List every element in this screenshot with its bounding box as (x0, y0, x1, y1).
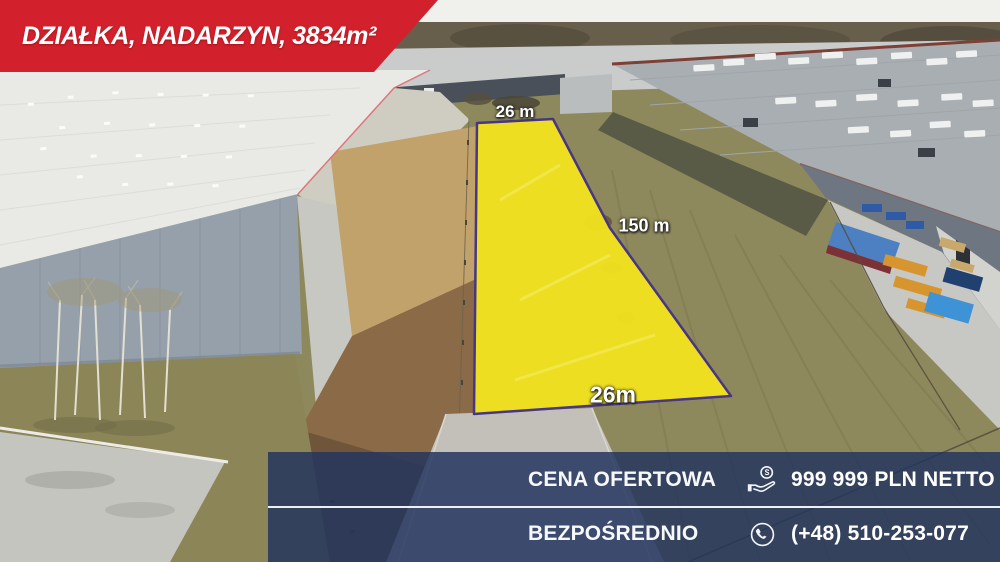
phone-icon (745, 520, 779, 549)
listing-image: 26 m 150 m 26m DZIAŁKA, NADARZYN, 3834m²… (0, 0, 1000, 562)
offer-panel: CENA OFERTOWA 999 999 PLN NETTO BEZPOŚRE… (268, 452, 1000, 562)
listing-banner: DZIAŁKA, NADARZYN, 3834m² (0, 0, 440, 72)
plot-outline (474, 119, 731, 414)
contact-row: BEZPOŚREDNIO (+48) 510-253-077 (268, 507, 1000, 561)
price-label: CENA OFERTOWA (528, 468, 745, 492)
price-hand-coin-icon (745, 464, 779, 496)
price-row: CENA OFERTOWA 999 999 PLN NETTO (268, 452, 1000, 507)
panel-divider (268, 506, 1000, 508)
contact-label: BEZPOŚREDNIO (528, 522, 745, 546)
plot-width-top-label: 26 m (496, 102, 535, 122)
price-value: 999 999 PLN NETTO (791, 468, 995, 492)
plot-length-label: 150 m (618, 216, 669, 237)
listing-title: DZIAŁKA, NADARZYN, 3834m² (0, 22, 376, 51)
phone-number: (+48) 510-253-077 (791, 522, 969, 546)
plot-width-bottom-label: 26m (590, 382, 636, 409)
